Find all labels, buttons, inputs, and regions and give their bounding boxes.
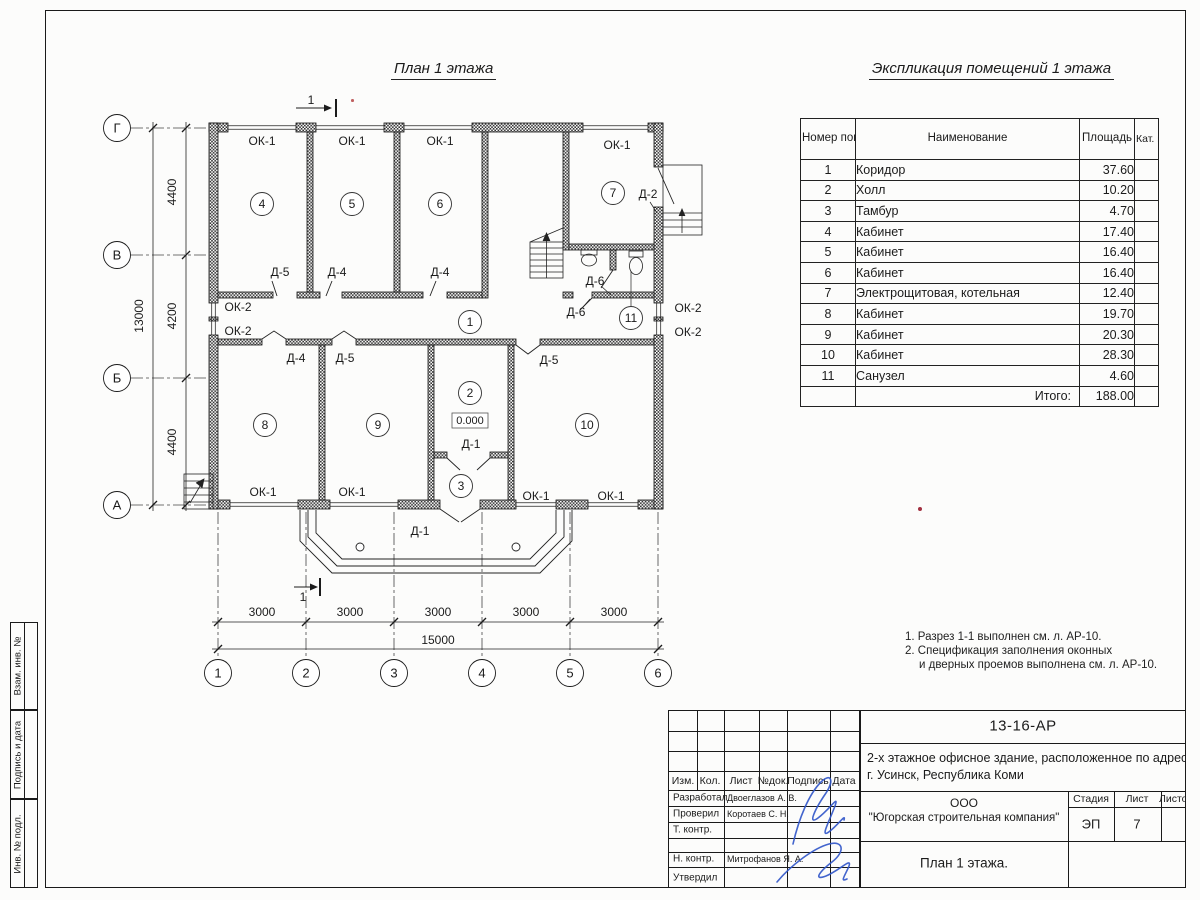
table-header-row: Номер помещ. Наименование Площадь Кат. п… xyxy=(801,119,1159,160)
svg-text:2: 2 xyxy=(302,666,309,681)
drawing-notes: 1. Разрез 1-1 выполнен см. л. АР-10. 2. … xyxy=(905,630,1157,672)
svg-text:4: 4 xyxy=(259,197,266,211)
door-tag: Д-4 xyxy=(328,265,347,279)
axis-bubbles xyxy=(104,115,672,687)
window-tag: ОК-1 xyxy=(427,134,454,148)
stamp-label: Подпись и дата xyxy=(13,720,24,788)
svg-text:Б: Б xyxy=(113,371,122,386)
col-kol: Кол. xyxy=(700,775,721,787)
table-row: 11Санузел4.60 xyxy=(801,365,1159,386)
svg-text:3000: 3000 xyxy=(337,605,364,619)
project-description-line2: г. Усинск, Республика Коми xyxy=(867,768,1024,782)
section-mark-label: 1 xyxy=(300,590,307,604)
svg-text:13000: 13000 xyxy=(132,299,146,333)
window-tag: ОК-1 xyxy=(598,489,625,503)
leader-lines xyxy=(583,202,657,307)
svg-text:3000: 3000 xyxy=(425,605,452,619)
door-tag: Д-5 xyxy=(540,353,559,367)
dimension-labels: 3000 3000 3000 3000 3000 15000 4400 4200… xyxy=(132,178,628,647)
svg-text:В: В xyxy=(113,248,122,263)
dimension-ticks xyxy=(149,124,662,653)
svg-text:3000: 3000 xyxy=(513,605,540,619)
floor-plan: 1 1 3000 3000 3000 3000 3000 15000 4400 … xyxy=(50,40,790,720)
window-tag: ОК-2 xyxy=(675,325,702,339)
stamp-label: Взам. инв. № xyxy=(13,637,24,696)
signature-ink xyxy=(793,778,844,844)
window-tag: ОК-1 xyxy=(249,134,276,148)
col-header-cat: Кат. пом. xyxy=(1135,119,1159,160)
svg-text:4: 4 xyxy=(478,666,485,681)
exterior-stair-right xyxy=(663,165,702,235)
svg-text:6: 6 xyxy=(654,666,661,681)
door-tag: Д-4 xyxy=(287,351,306,365)
window-tag: ОК-2 xyxy=(225,324,252,338)
schedule-title: Экспликация помещений 1 этажа xyxy=(869,60,1114,80)
svg-text:11: 11 xyxy=(625,311,638,325)
svg-text:4400: 4400 xyxy=(165,178,179,205)
project-description-line1: 2-х этажное офисное здание, расположенно… xyxy=(867,751,1186,765)
porch xyxy=(300,510,572,573)
svg-text:4400: 4400 xyxy=(165,428,179,455)
role-label: Т. контр. xyxy=(673,825,712,836)
role-label: Разработал xyxy=(673,793,727,804)
margin-stamp-box: Подпись и дата xyxy=(10,710,38,799)
margin-stamp-box: Взам. инв. № xyxy=(10,622,38,710)
drawing-sheet: Взам. инв. №Подпись и датаИнв. № подл. П… xyxy=(0,0,1200,900)
table-row: 3Тамбур4.70 xyxy=(801,201,1159,222)
note-line: 1. Разрез 1-1 выполнен см. л. АР-10. xyxy=(905,630,1157,644)
door-tag: Д-5 xyxy=(271,265,290,279)
signature-scribbles xyxy=(769,766,889,888)
windows xyxy=(212,126,661,507)
svg-text:3000: 3000 xyxy=(249,605,276,619)
section-mark-label: 1 xyxy=(308,93,315,107)
svg-text:1: 1 xyxy=(467,315,474,329)
porch-column xyxy=(512,543,520,551)
stage-value: ЭП xyxy=(1082,817,1101,832)
table-row: 10Кабинет28.30 xyxy=(801,345,1159,366)
table-row: 2Холл10.20 xyxy=(801,180,1159,201)
window-tag: ОК-1 xyxy=(604,138,631,152)
svg-text:5: 5 xyxy=(566,666,573,681)
stamp-divider xyxy=(24,623,25,709)
sheet-number: 7 xyxy=(1133,817,1140,832)
table-total-row: Итого:188.00 xyxy=(801,386,1159,407)
table-row: 8Кабинет19.70 xyxy=(801,304,1159,325)
sheets-header: Листов xyxy=(1159,793,1186,805)
svg-text:6: 6 xyxy=(437,197,444,211)
window-tag: ОК-2 xyxy=(675,301,702,315)
table-row: 9Кабинет20.30 xyxy=(801,324,1159,345)
axis-labels: Г В Б А 1 2 3 4 5 6 xyxy=(113,121,662,681)
svg-text:1: 1 xyxy=(214,666,221,681)
stairs-icon xyxy=(530,228,563,278)
svg-text:3: 3 xyxy=(390,666,397,681)
porch-column xyxy=(356,543,364,551)
note-line: 2. Спецификация заполнения оконных xyxy=(905,644,1157,658)
col-header-area: Площадь xyxy=(1080,119,1135,160)
role-label: Утвердил xyxy=(673,873,717,884)
col-header-number: Номер помещ. xyxy=(801,119,856,160)
svg-text:3000: 3000 xyxy=(601,605,628,619)
sink-icon xyxy=(581,250,597,266)
role-label: Н. контр. xyxy=(673,854,714,865)
svg-text:3: 3 xyxy=(458,479,465,493)
window-tag: ОК-2 xyxy=(225,300,252,314)
svg-text:4200: 4200 xyxy=(165,302,179,329)
title-block: Изм. Кол. Лист №док. Подпись Дата Разраб… xyxy=(668,710,1186,888)
sheet-header: Лист xyxy=(1126,793,1149,805)
role-label: Проверил xyxy=(673,809,719,820)
window-tag: ОК-1 xyxy=(339,485,366,499)
stage-header: Стадия xyxy=(1073,793,1109,805)
table-row: 4Кабинет17.40 xyxy=(801,221,1159,242)
walls xyxy=(209,123,663,509)
signature-ink xyxy=(777,843,849,882)
stamp-divider xyxy=(24,711,25,798)
door-tag: Д-5 xyxy=(336,351,355,365)
window-tag: ОК-1 xyxy=(339,134,366,148)
door-tag: Д-1 xyxy=(411,524,430,538)
svg-text:5: 5 xyxy=(349,197,356,211)
dimension-lines xyxy=(153,122,664,649)
room-schedule-table: Номер помещ. Наименование Площадь Кат. п… xyxy=(800,118,1159,407)
door-tag: Д-4 xyxy=(431,265,450,279)
scan-artifact xyxy=(351,99,354,102)
company-name-line1: ООО xyxy=(950,796,978,810)
scan-artifact xyxy=(918,507,922,511)
margin-stamp-box: Инв. № подл. xyxy=(10,799,38,888)
door-tag: Д-1 xyxy=(462,437,481,451)
svg-text:7: 7 xyxy=(610,186,617,200)
table-row: 1Коридор37.60 xyxy=(801,160,1159,181)
col-header-name: Наименование xyxy=(856,119,1080,160)
svg-text:0.000: 0.000 xyxy=(456,415,484,427)
stamp-label: Инв. № подл. xyxy=(13,814,24,873)
window-tag: ОК-1 xyxy=(250,485,277,499)
schedule-body: 1Коридор37.602Холл10.203Тамбур4.704Кабин… xyxy=(801,160,1159,407)
svg-text:2: 2 xyxy=(467,386,474,400)
door-tag: Д-2 xyxy=(639,187,658,201)
svg-text:9: 9 xyxy=(375,418,382,432)
table-row: 5Кабинет16.40 xyxy=(801,242,1159,263)
svg-text:А: А xyxy=(113,498,122,513)
toilet-icon xyxy=(629,251,643,275)
door-tag: Д-6 xyxy=(567,305,586,319)
table-row: 6Кабинет16.40 xyxy=(801,262,1159,283)
stamp-divider xyxy=(24,800,25,887)
svg-text:15000: 15000 xyxy=(421,633,455,647)
level-mark: 0.000 xyxy=(452,413,488,428)
sheet-title: План 1 этажа. xyxy=(920,856,1008,871)
col-izm: Изм. xyxy=(672,775,695,787)
svg-text:8: 8 xyxy=(262,418,269,432)
svg-text:10: 10 xyxy=(580,418,594,432)
col-list: Лист xyxy=(730,775,753,787)
window-tag: ОК-1 xyxy=(523,489,550,503)
company-name-line2: "Югорская строительная компания" xyxy=(869,812,1060,824)
doc-number: 13-16-АР xyxy=(989,718,1056,735)
svg-text:Г: Г xyxy=(113,121,120,136)
door-tag: Д-6 xyxy=(586,274,605,288)
table-row: 7Электрощитовая, котельная12.40 xyxy=(801,283,1159,304)
note-line: и дверных проемов выполнена см. л. АР-10… xyxy=(905,658,1157,672)
